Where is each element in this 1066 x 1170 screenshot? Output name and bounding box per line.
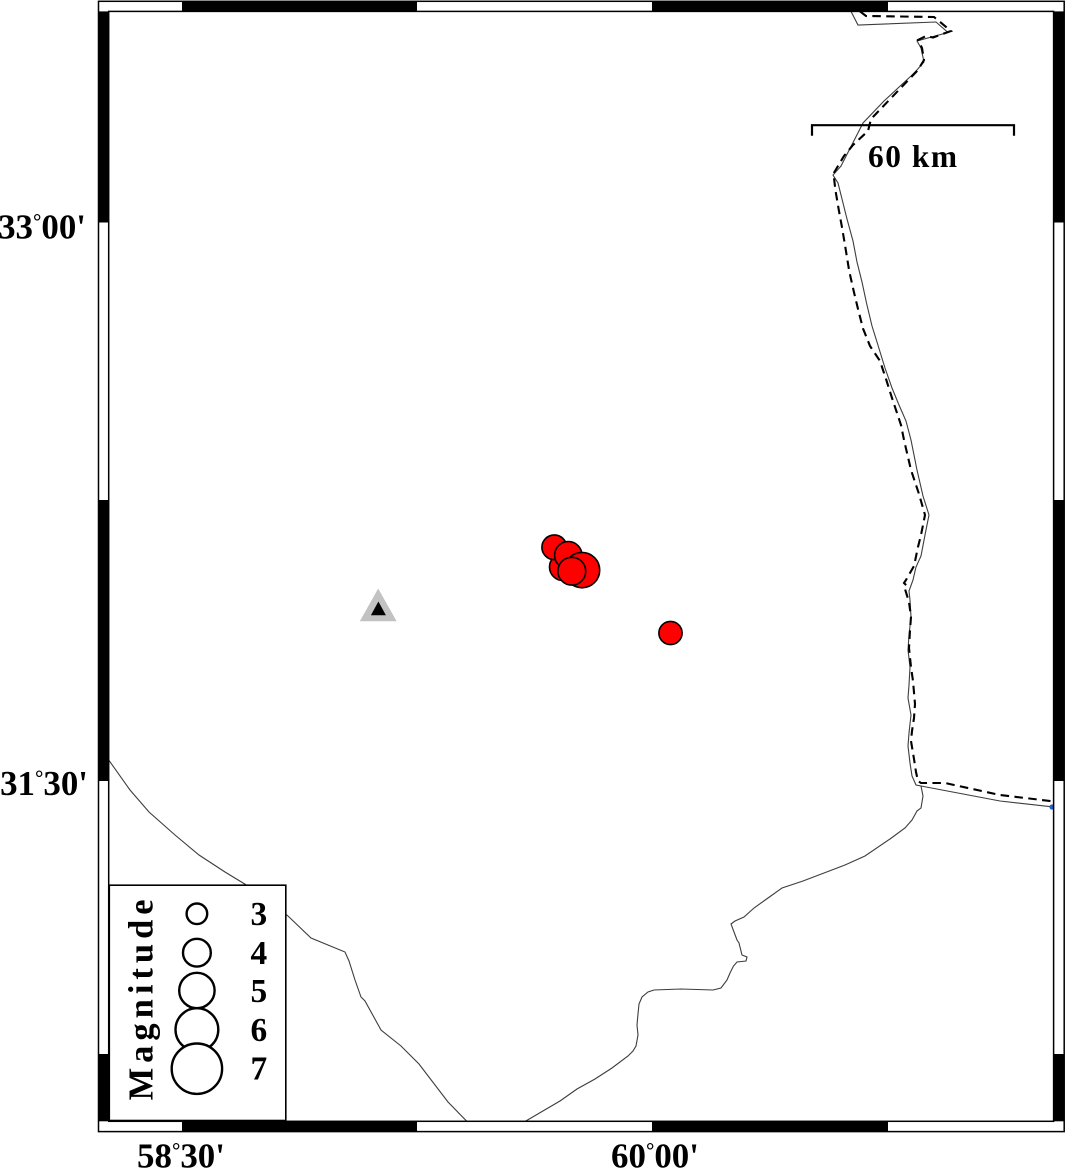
svg-text:60 km: 60 km: [868, 139, 957, 174]
svg-text:5: 5: [250, 973, 267, 1010]
svg-text:Magnitude: Magnitude: [123, 894, 161, 1100]
svg-text:7: 7: [250, 1050, 267, 1087]
svg-text:60°00': 60°00': [611, 1137, 699, 1170]
svg-text:58°30': 58°30': [137, 1137, 225, 1170]
svg-text:31°30': 31°30': [0, 764, 88, 803]
svg-text:6: 6: [250, 1012, 267, 1049]
svg-text:4: 4: [250, 935, 267, 972]
svg-text:33°00': 33°00': [0, 208, 86, 247]
svg-text:3: 3: [250, 896, 267, 933]
